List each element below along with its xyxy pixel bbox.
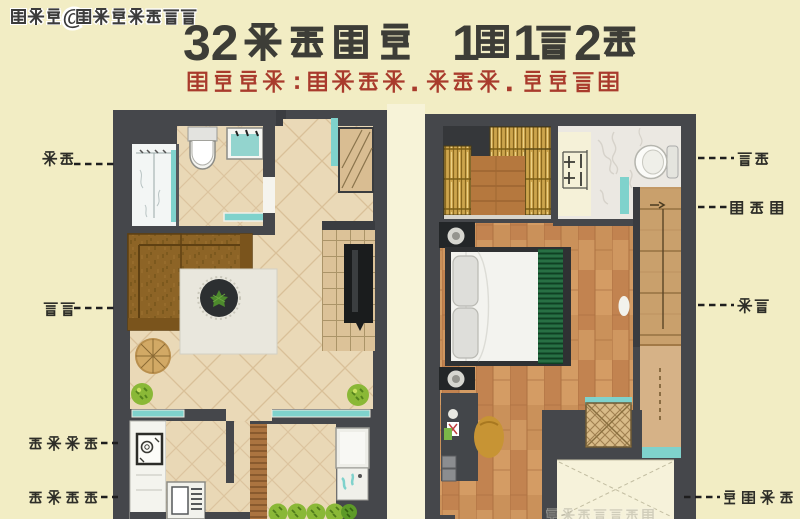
svg-text:2: 2 (574, 15, 602, 71)
svg-text:1: 1 (452, 15, 480, 71)
svg-text:1: 1 (513, 15, 541, 71)
